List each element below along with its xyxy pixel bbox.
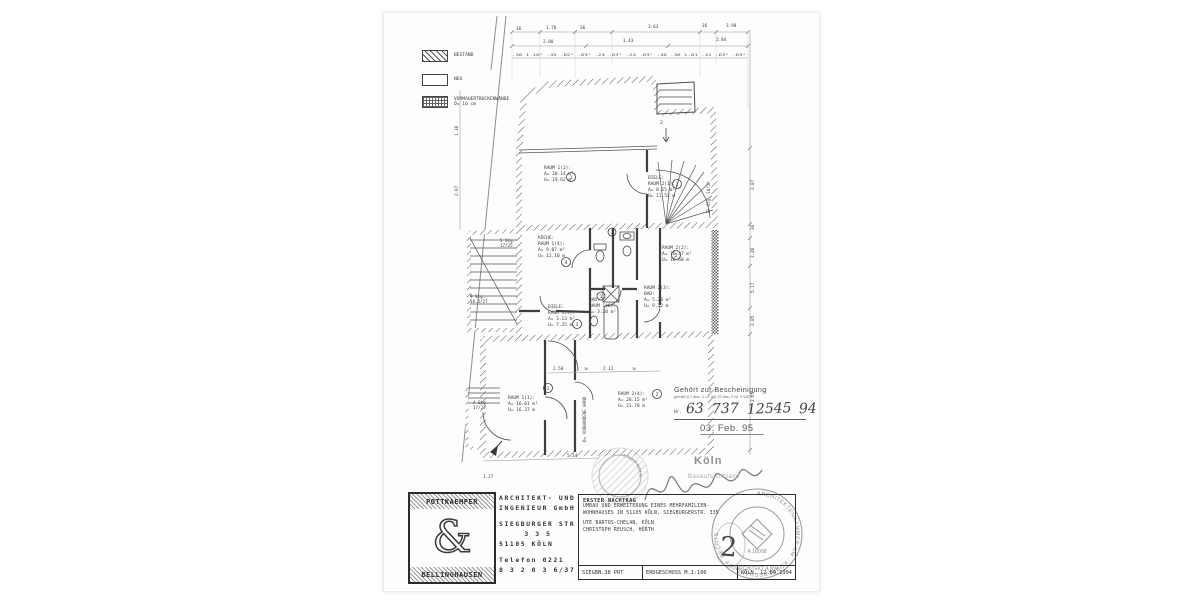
svg-text:1.27: 1.27 (483, 474, 494, 480)
approval-stamp: Gehört zur Bescheinigung gemäß § 7 Abs. … (674, 385, 806, 435)
svg-text:2: 2 (656, 392, 659, 398)
svg-text:2.00: 2.00 (543, 39, 554, 45)
firm-line-2: INGENIEUR GmbH (499, 504, 577, 514)
svg-text:3.90: 3.90 (726, 23, 737, 29)
room-label-bad-1-6: BAD:RAUM 1(6):A= 3.20 m² (589, 298, 616, 316)
firm-street-no: 3 3 5 (499, 530, 577, 540)
svg-text:1: 1 (547, 386, 550, 392)
legend-item-vormauer: VORMAUERTROCKENWÄNDE D= 16 cm (422, 96, 509, 108)
client-line-2: CHRISTOPH REUSCH, HÜRTH (583, 528, 791, 535)
file-number: 94 (799, 401, 817, 418)
wall-note: D= VORHANDENE WAND (582, 397, 587, 442)
room-label-bad-2-3: RAUM 2(3):BAD:A= 5.28 m²U= 9.32 m (644, 286, 671, 309)
bestand-swatch (422, 50, 448, 62)
svg-text:4: 4 (565, 260, 568, 266)
legend-neu-label: NEU (454, 77, 462, 83)
firm-address-block: ARCHITEKT- UND INGENIEUR GmbH SIEGBURGER… (499, 494, 577, 575)
svg-text:1.70: 1.70 (546, 25, 557, 31)
svg-text:3: 3 (576, 322, 579, 328)
svg-text:36: 36 (702, 23, 708, 29)
svg-text:3.63: 3.63 (648, 24, 659, 30)
logo-top-band: POTTKAEMPER (410, 494, 494, 509)
svg-text:36: 36 (632, 367, 636, 371)
legend-item-bestand: BESTAND (422, 50, 473, 62)
room-label-kueche: KÜCHE:RAUM 1(4):A= 9.07 m²U= 12.10 m (538, 236, 565, 259)
room-label-raum-2-2: RAUM 2(2):A= 16.37 m²U= 16.68 m (662, 246, 692, 264)
svg-text:2.87: 2.87 (750, 179, 756, 190)
legend-bestand-label: BESTAND (454, 53, 473, 59)
stair-label-9stg: 9 Stg.18.5/27 (470, 294, 488, 305)
firm-line-1: ARCHITEKT- UND (499, 494, 577, 504)
svg-text:36: 36 (584, 367, 588, 371)
scanned-floor-plan-page: 36 1.70 36 3.63 36 3.90 2.00 3.43 2.84 .… (0, 0, 1200, 600)
firm-phone-1: Telefon 0221 (499, 556, 577, 566)
drawing-title-scale: ERDGESCHOSS M.1:100 (643, 566, 738, 579)
stair-label-5stg: 5 Stg.17/25 (500, 238, 515, 249)
firm-city: 51105 KÖLN (499, 540, 577, 550)
divider (794, 402, 796, 417)
project-line-3: WOHNHAUSES IN 51105 KÖLN, SIEGBURGERSTR.… (583, 511, 791, 518)
bay-window-band (519, 146, 657, 153)
firm-phone-2: 8 3 2 0 3 6/37 (499, 566, 577, 576)
title-block-footer: SIEGBN.38 PRT ERDGESCHOSS M.1:100 KÖLN, … (579, 565, 795, 579)
approval-nr-label: Nr. (674, 410, 682, 415)
stair-label-13stg: 13 Stg. 18/25 (706, 181, 711, 214)
svg-text:5.17: 5.17 (750, 282, 756, 293)
svg-text:2.46: 2.46 (750, 247, 756, 258)
date-stamp: 03. Feb. 95 (700, 423, 764, 435)
approval-title: Gehört zur Bescheinigung (674, 385, 806, 394)
room-label-raum-1-1: RAUM 1(1):A= 16.01 m²U= 16.37 m (508, 396, 538, 414)
file-number: 63 (686, 401, 704, 418)
svg-text:.36 1.10⁵ .45 .82⁵ .63⁵ .24 .6: .36 1.10⁵ .45 .82⁵ .63⁵ .24 .63⁵ .24 .63… (512, 53, 746, 57)
project-line-2: UMBAU UND ERWEITERUNG EINES MEHRFAMILIEN… (583, 504, 791, 511)
ampersand-logo: & (432, 516, 471, 560)
client-line-1: UTE BARTOS-CHELAN, KÖLN (583, 521, 791, 528)
svg-text:36: 36 (750, 224, 756, 230)
svg-text:2.12: 2.12 (603, 366, 614, 372)
stair-label-4stg: 4 Stg.17/27 (473, 400, 488, 411)
room-label-raum-2-4: RAUM 2(4):A= 28.15 m²U= 21.78 m (618, 392, 648, 410)
drawing-code: SIEGBN.38 PRT (579, 566, 643, 579)
divider (707, 402, 709, 417)
vormauer-swatch (422, 96, 448, 108)
room-label-raum-1-2: RAUM 1(2):A= 20.14 m²U= 19.62 m (544, 166, 574, 184)
svg-text:2: 2 (676, 182, 679, 188)
svg-text:2.07: 2.07 (454, 185, 460, 196)
divider (742, 402, 744, 417)
room-label-diele-1-5: DIELE:RAUM 1(5):A= 3.13 m²U= 7.25 m (548, 305, 575, 328)
entry-step-count: 2 (660, 120, 663, 126)
svg-text:2.84: 2.84 (716, 37, 727, 43)
svg-text:5.14: 5.14 (567, 453, 578, 459)
svg-text:2.85: 2.85 (750, 315, 756, 326)
svg-text:2: 2 (611, 230, 614, 236)
file-number: 737 (712, 401, 739, 418)
legend-item-neu: NEU (422, 74, 462, 86)
approval-legal: gemäß § 7 Abs. 4 i.V. 2/§ 32 Abs. 2 Nr. … (674, 395, 806, 399)
neu-swatch (422, 74, 448, 86)
firm-street: SIEGBURGER STR (499, 520, 577, 530)
svg-text:1.36: 1.36 (454, 125, 460, 136)
svg-text:36: 36 (580, 25, 586, 31)
drawing-place-date: KÖLN, 12.09.1994 (738, 566, 795, 579)
svg-text:3.43: 3.43 (623, 38, 634, 44)
svg-text:2.50: 2.50 (553, 366, 564, 372)
approval-file-numbers: Nr. 63 737 12545 94 (674, 400, 806, 420)
svg-text:36: 36 (516, 26, 522, 32)
city-stamp-name: Köln (694, 455, 722, 467)
city-stamp-office: Bauaufsichtsamt (688, 474, 740, 480)
logo-bottom-band: BELLINGHAUSEN (410, 567, 494, 582)
project-title-box: ERSTER NACHTRAG UMBAU UND ERWEITERUNG EI… (578, 494, 796, 580)
sheet-number: 2 (719, 531, 738, 563)
room-label-diele-2-1: DIELE:RAUM 2(1):A= 8.15 m²U= 11.52 m (648, 176, 675, 199)
legend-vormauer-sub: D= 16 cm (454, 102, 509, 108)
firm-logo-box: POTTKAEMPER & BELLINGHAUSEN (408, 492, 496, 584)
file-number: 12545 (746, 400, 791, 418)
